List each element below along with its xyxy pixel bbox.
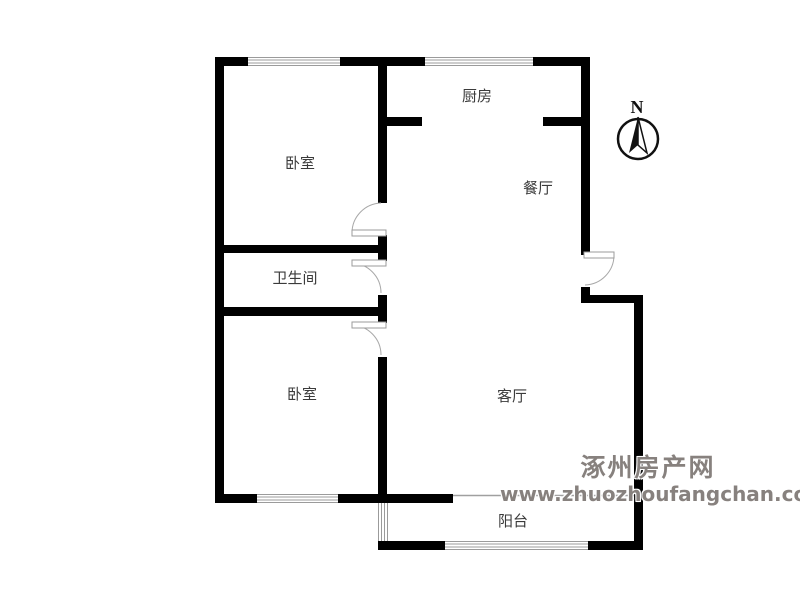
room-label-living: 客厅 (497, 387, 527, 405)
door-bedroom-top (352, 203, 386, 236)
compass-north-label: N (631, 97, 644, 117)
wall-left (215, 57, 224, 503)
doors (352, 203, 614, 355)
window-balcony (445, 541, 588, 550)
door-bathroom (352, 260, 386, 293)
window-bedroom-top (248, 57, 340, 66)
wall-center-b (378, 235, 387, 261)
room-label-bedroom-bottom: 卧室 (287, 385, 317, 403)
window-bedroom-bottom (257, 494, 338, 503)
compass: N (618, 97, 658, 159)
room-label-bathroom: 卫生间 (272, 269, 317, 287)
wall-right-lower (634, 295, 643, 550)
door-entry (584, 252, 614, 285)
walls (215, 57, 643, 550)
door-bedroom-bottom (352, 322, 386, 355)
room-label-kitchen: 厨房 (462, 87, 492, 105)
wall-center-c (378, 295, 387, 323)
window-kitchen (425, 57, 533, 66)
wall-center-a (378, 57, 387, 203)
wall-jog (581, 295, 643, 303)
room-label-bedroom-top: 卧室 (285, 154, 315, 172)
floorplan-svg: 卧室 厨房 餐厅 卫生间 卧室 客厅 阳台 N (0, 0, 800, 600)
room-label-dining: 餐厅 (523, 179, 553, 197)
window-balcony-side (378, 503, 388, 541)
windows (248, 57, 634, 550)
wall-kitchen-bottom-left (378, 117, 422, 126)
wall-bedroom1-bathroom (223, 245, 378, 253)
room-label-balcony: 阳台 (498, 512, 528, 530)
wall-right-upper (581, 57, 590, 255)
wall-center-d (378, 357, 387, 503)
wall-bathroom-bedroom2 (223, 307, 378, 316)
floorplan-canvas: 卧室 厨房 餐厅 卫生间 卧室 客厅 阳台 N 涿州房产网 www.zhuozh… (0, 0, 800, 600)
wall-kitchen-bottom-right (543, 117, 590, 126)
